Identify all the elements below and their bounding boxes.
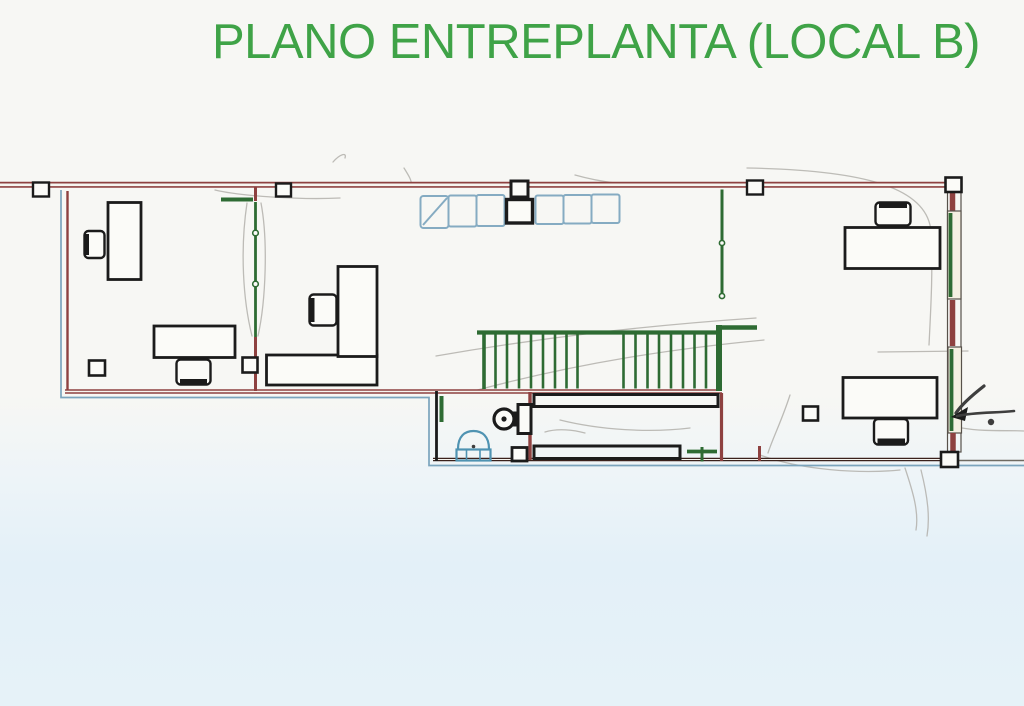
- desk: [845, 228, 940, 269]
- chair: [876, 203, 911, 226]
- wall-marker: [511, 181, 528, 197]
- chair: [177, 360, 211, 385]
- open-area-furniture: [267, 267, 378, 386]
- left-office-furniture: [85, 203, 236, 385]
- floor-plan-drawing: [0, 0, 1024, 706]
- corner-marker: [941, 452, 958, 467]
- desk: [267, 355, 378, 385]
- desk: [154, 326, 235, 358]
- stair-treads: [496, 335, 707, 389]
- corner-marker: [946, 178, 962, 193]
- chair: [85, 231, 105, 258]
- bathroom: [437, 391, 532, 461]
- corridor-rails: [534, 395, 718, 459]
- chair: [310, 295, 337, 326]
- desk: [843, 378, 937, 419]
- sink: [457, 431, 491, 461]
- staircase: [477, 325, 757, 391]
- desk-return: [338, 267, 377, 357]
- small-cabinet: [803, 407, 818, 421]
- toilet: [494, 405, 531, 434]
- desk: [108, 203, 141, 280]
- wall-marker: [747, 181, 763, 195]
- scanned-floor-plan-page: PLANO ENTREPLANTA (LOCAL B): [0, 0, 1024, 706]
- column-block: [507, 200, 533, 224]
- small-cabinet: [89, 361, 105, 376]
- wall-marker: [33, 183, 49, 197]
- chair: [874, 419, 908, 445]
- right-office-furniture: [803, 203, 940, 445]
- floor-drain: [512, 448, 527, 462]
- partition-left: [221, 187, 258, 392]
- wall-marker: [276, 184, 291, 197]
